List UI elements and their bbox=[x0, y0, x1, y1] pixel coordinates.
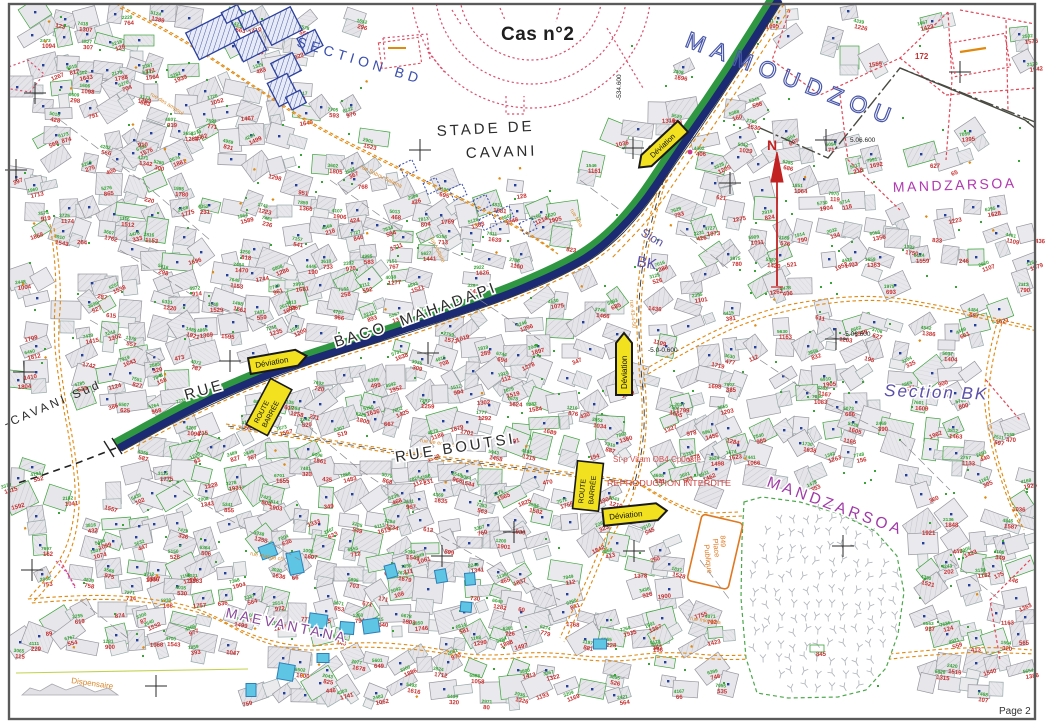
svg-text:406: 406 bbox=[696, 152, 707, 158]
svg-text:-534.600: -534.600 bbox=[616, 74, 623, 100]
svg-text:6409: 6409 bbox=[447, 694, 458, 700]
svg-text:559: 559 bbox=[257, 315, 268, 322]
svg-text:4111: 4111 bbox=[29, 641, 39, 647]
svg-text:7111: 7111 bbox=[404, 499, 415, 505]
svg-text:231: 231 bbox=[200, 210, 211, 216]
svg-text:4727: 4727 bbox=[704, 225, 715, 232]
svg-text:1259: 1259 bbox=[421, 404, 435, 410]
svg-text:565: 565 bbox=[1019, 641, 1030, 647]
svg-text:3624: 3624 bbox=[708, 456, 719, 463]
svg-text:1058: 1058 bbox=[471, 679, 485, 686]
svg-text:693: 693 bbox=[886, 290, 897, 296]
svg-text:7113: 7113 bbox=[1018, 282, 1029, 288]
svg-text:910: 910 bbox=[138, 142, 149, 149]
svg-text:1901: 1901 bbox=[497, 544, 511, 551]
svg-text:5013: 5013 bbox=[389, 209, 400, 216]
svg-text:649: 649 bbox=[374, 664, 385, 670]
svg-text:6478: 6478 bbox=[780, 285, 792, 292]
svg-text:1979: 1979 bbox=[884, 284, 895, 290]
svg-text:7592: 7592 bbox=[205, 118, 217, 125]
svg-text:2469: 2469 bbox=[876, 421, 887, 427]
svg-text:1302: 1302 bbox=[477, 400, 491, 407]
svg-text:733: 733 bbox=[323, 264, 334, 271]
svg-text:6124: 6124 bbox=[914, 253, 925, 259]
svg-text:5909: 5909 bbox=[748, 234, 759, 241]
svg-text:7441: 7441 bbox=[745, 455, 756, 461]
svg-text:1559: 1559 bbox=[916, 259, 930, 265]
svg-text:5021: 5021 bbox=[187, 573, 198, 579]
svg-text:2971: 2971 bbox=[481, 699, 492, 706]
svg-text:66: 66 bbox=[676, 695, 684, 701]
svg-text:Cas n°2: Cas n°2 bbox=[501, 24, 574, 45]
svg-text:530: 530 bbox=[177, 591, 188, 598]
svg-text:4985: 4985 bbox=[362, 254, 373, 260]
svg-text:764: 764 bbox=[124, 21, 135, 27]
svg-text:845: 845 bbox=[816, 652, 827, 658]
svg-text:1906: 1906 bbox=[333, 214, 347, 221]
svg-text:970: 970 bbox=[346, 266, 357, 273]
svg-text:1768: 1768 bbox=[566, 622, 580, 629]
svg-text:506: 506 bbox=[201, 551, 212, 558]
svg-text:446: 446 bbox=[326, 688, 337, 695]
svg-text:7271: 7271 bbox=[124, 590, 135, 596]
svg-text:7158: 7158 bbox=[1004, 432, 1015, 438]
svg-text:619: 619 bbox=[75, 619, 86, 626]
svg-text:5.06.600: 5.06.600 bbox=[850, 137, 876, 144]
svg-text:6381: 6381 bbox=[502, 626, 513, 633]
svg-text:Page 2: Page 2 bbox=[999, 706, 1031, 717]
svg-text:713: 713 bbox=[438, 240, 449, 246]
svg-text:1746: 1746 bbox=[415, 626, 429, 633]
svg-text:667: 667 bbox=[384, 422, 395, 428]
svg-text:5341: 5341 bbox=[222, 502, 233, 508]
svg-text:1098: 1098 bbox=[81, 89, 95, 96]
svg-text:1098: 1098 bbox=[302, 548, 314, 555]
svg-text:Déviation: Déviation bbox=[620, 356, 629, 389]
svg-text:1609: 1609 bbox=[68, 92, 79, 99]
svg-text:7850: 7850 bbox=[812, 394, 823, 400]
svg-text:7059: 7059 bbox=[959, 131, 971, 138]
svg-text:246: 246 bbox=[959, 259, 970, 265]
svg-text:1231: 1231 bbox=[103, 639, 114, 645]
svg-text:1404: 1404 bbox=[944, 357, 958, 363]
svg-text:1512: 1512 bbox=[121, 222, 135, 229]
svg-text:3618: 3618 bbox=[320, 259, 331, 266]
svg-text:914: 914 bbox=[192, 291, 203, 298]
svg-text:1805: 1805 bbox=[329, 169, 343, 176]
svg-text:-5.06.600: -5.06.600 bbox=[843, 331, 871, 338]
svg-text:1467: 1467 bbox=[241, 116, 255, 123]
svg-text:3115: 3115 bbox=[158, 471, 169, 477]
svg-text:7418: 7418 bbox=[77, 21, 88, 28]
svg-text:436: 436 bbox=[1035, 239, 1046, 245]
svg-text:4700: 4700 bbox=[165, 636, 176, 643]
svg-text:5037: 5037 bbox=[942, 351, 953, 357]
svg-text:6502: 6502 bbox=[294, 667, 306, 674]
svg-text:2392: 2392 bbox=[343, 260, 354, 267]
svg-text:1153: 1153 bbox=[145, 238, 159, 245]
svg-text:823: 823 bbox=[932, 238, 943, 245]
svg-text:876: 876 bbox=[568, 411, 579, 418]
svg-text:1851: 1851 bbox=[792, 183, 803, 189]
svg-text:1529: 1529 bbox=[210, 308, 224, 314]
svg-text:972: 972 bbox=[275, 606, 286, 613]
svg-text:2484: 2484 bbox=[233, 262, 244, 268]
svg-text:1863: 1863 bbox=[189, 579, 203, 585]
svg-text:1498: 1498 bbox=[711, 461, 725, 468]
svg-text:3725: 3725 bbox=[59, 213, 70, 219]
svg-text:66: 66 bbox=[292, 575, 300, 582]
svg-text:520: 520 bbox=[302, 422, 313, 429]
svg-text:4831: 4831 bbox=[491, 202, 503, 209]
svg-text:4446: 4446 bbox=[306, 264, 317, 270]
svg-text:1163: 1163 bbox=[1001, 621, 1015, 627]
svg-text:1200: 1200 bbox=[495, 538, 506, 545]
svg-text:3816: 3816 bbox=[85, 522, 96, 529]
svg-text:4271: 4271 bbox=[137, 155, 148, 162]
svg-text:4369: 4369 bbox=[432, 492, 444, 499]
svg-text:726: 726 bbox=[505, 631, 516, 638]
svg-text:1307: 1307 bbox=[79, 27, 93, 34]
svg-text:1804: 1804 bbox=[18, 384, 32, 391]
svg-text:3065: 3065 bbox=[13, 648, 24, 655]
svg-text:2255: 2255 bbox=[72, 613, 84, 620]
svg-text:4546: 4546 bbox=[1002, 518, 1013, 525]
svg-text:1907: 1907 bbox=[147, 577, 161, 583]
svg-text:967: 967 bbox=[406, 505, 417, 511]
svg-text:1921: 1921 bbox=[922, 531, 936, 537]
svg-text:1848: 1848 bbox=[945, 523, 959, 529]
svg-text:5042: 5042 bbox=[737, 142, 748, 149]
svg-text:1470: 1470 bbox=[235, 268, 249, 274]
svg-text:1850: 1850 bbox=[412, 620, 423, 627]
svg-text:385: 385 bbox=[726, 388, 737, 394]
svg-text:1342: 1342 bbox=[139, 161, 153, 168]
svg-text:6507: 6507 bbox=[118, 402, 129, 409]
svg-text:4352: 4352 bbox=[198, 204, 209, 210]
svg-text:7697: 7697 bbox=[41, 546, 52, 552]
svg-text:618: 618 bbox=[241, 255, 252, 262]
svg-text:6563: 6563 bbox=[923, 621, 934, 627]
svg-text:1606: 1606 bbox=[79, 83, 90, 90]
svg-text:1292: 1292 bbox=[478, 416, 492, 422]
svg-text:4260: 4260 bbox=[185, 425, 196, 432]
svg-text:1064: 1064 bbox=[794, 189, 808, 195]
svg-text:767: 767 bbox=[389, 264, 400, 271]
svg-text:1546: 1546 bbox=[586, 163, 597, 169]
svg-text:Section BK: Section BK bbox=[884, 381, 989, 404]
svg-text:5630: 5630 bbox=[777, 329, 788, 335]
svg-text:1210: 1210 bbox=[566, 405, 578, 412]
svg-text:5073: 5073 bbox=[843, 406, 854, 412]
svg-text:4243: 4243 bbox=[941, 563, 952, 570]
svg-text:6910: 6910 bbox=[820, 376, 832, 383]
svg-text:1011: 1011 bbox=[751, 240, 765, 247]
svg-text:1777: 1777 bbox=[476, 410, 487, 416]
svg-text:1133: 1133 bbox=[962, 461, 976, 467]
svg-text:1913: 1913 bbox=[286, 300, 297, 306]
svg-text:115: 115 bbox=[15, 654, 26, 661]
svg-text:4807: 4807 bbox=[165, 117, 176, 123]
svg-text:1587: 1587 bbox=[1004, 524, 1018, 531]
svg-text:5387: 5387 bbox=[765, 257, 776, 264]
svg-text:2182: 2182 bbox=[62, 495, 73, 502]
svg-text:470: 470 bbox=[1006, 438, 1017, 444]
svg-text:6588: 6588 bbox=[469, 673, 480, 680]
svg-text:1595: 1595 bbox=[221, 334, 235, 341]
svg-text:4415: 4415 bbox=[723, 310, 735, 317]
svg-text:CAVANI: CAVANI bbox=[466, 143, 538, 162]
svg-text:1543: 1543 bbox=[167, 642, 181, 649]
svg-text:583: 583 bbox=[364, 260, 375, 266]
svg-text:937: 937 bbox=[925, 627, 936, 633]
svg-text:4107: 4107 bbox=[331, 208, 342, 215]
svg-text:2502: 2502 bbox=[1022, 33, 1034, 40]
svg-text:298: 298 bbox=[70, 98, 81, 105]
svg-text:4038: 4038 bbox=[385, 274, 396, 281]
svg-text:381: 381 bbox=[726, 316, 737, 323]
svg-text:80: 80 bbox=[483, 705, 491, 711]
svg-text:1973: 1973 bbox=[707, 231, 721, 238]
svg-text:1609: 1609 bbox=[915, 406, 929, 413]
svg-text:730: 730 bbox=[470, 596, 481, 603]
svg-text:N: N bbox=[767, 137, 777, 153]
svg-text:3189: 3189 bbox=[778, 235, 790, 242]
svg-text:1277: 1277 bbox=[388, 280, 402, 287]
svg-text:2757: 2757 bbox=[960, 455, 971, 461]
svg-text:7970: 7970 bbox=[828, 191, 839, 198]
svg-text:865: 865 bbox=[104, 191, 115, 198]
svg-text:1267: 1267 bbox=[288, 306, 302, 312]
svg-text:1659: 1659 bbox=[865, 257, 876, 263]
svg-text:REPRODUCTION INTERDITE: REPRODUCTION INTERDITE bbox=[607, 478, 731, 488]
svg-text:2816: 2816 bbox=[143, 232, 154, 239]
svg-text:264: 264 bbox=[77, 240, 88, 247]
svg-text:1441: 1441 bbox=[423, 257, 437, 263]
svg-text:190: 190 bbox=[308, 270, 319, 276]
svg-text:323: 323 bbox=[302, 472, 313, 478]
svg-text:855: 855 bbox=[224, 508, 235, 514]
svg-text:6356: 6356 bbox=[436, 234, 447, 240]
svg-text:1827: 1827 bbox=[81, 39, 92, 46]
svg-text:1985: 1985 bbox=[173, 186, 184, 193]
svg-text:6701: 6701 bbox=[274, 473, 285, 479]
svg-text:790: 790 bbox=[1020, 288, 1031, 294]
svg-text:1088: 1088 bbox=[150, 643, 164, 649]
svg-text:St-p Vitam OB4 Cp0oste: St-p Vitam OB4 Cp0oste bbox=[613, 455, 702, 464]
svg-text:202: 202 bbox=[944, 569, 955, 576]
svg-text:771: 771 bbox=[207, 124, 218, 131]
svg-text:1463: 1463 bbox=[949, 434, 963, 441]
svg-text:320: 320 bbox=[1002, 646, 1013, 653]
svg-text:627: 627 bbox=[930, 164, 941, 170]
svg-text:780: 780 bbox=[732, 262, 743, 268]
svg-text:1116: 1116 bbox=[119, 216, 130, 223]
svg-text:1378: 1378 bbox=[634, 574, 648, 580]
svg-text:320: 320 bbox=[449, 700, 460, 706]
svg-text:5972: 5972 bbox=[189, 285, 200, 292]
svg-text:BK: BK bbox=[635, 253, 658, 273]
svg-text:6364: 6364 bbox=[199, 545, 210, 552]
svg-text:1780: 1780 bbox=[175, 192, 189, 199]
svg-text:7611: 7611 bbox=[486, 231, 497, 238]
svg-text:7859: 7859 bbox=[297, 200, 308, 207]
svg-text:1041: 1041 bbox=[65, 501, 79, 508]
svg-text:1094: 1094 bbox=[42, 44, 56, 50]
svg-text:435: 435 bbox=[322, 477, 333, 484]
svg-text:307: 307 bbox=[83, 45, 94, 52]
svg-text:1655: 1655 bbox=[276, 479, 290, 485]
svg-text:1029: 1029 bbox=[739, 148, 753, 155]
svg-text:535: 535 bbox=[717, 689, 728, 696]
svg-text:1639: 1639 bbox=[488, 237, 502, 244]
svg-text:1420: 1420 bbox=[767, 263, 781, 270]
svg-text:2746: 2746 bbox=[594, 307, 606, 314]
svg-text:3250: 3250 bbox=[239, 249, 251, 256]
svg-text:593: 593 bbox=[329, 113, 340, 120]
svg-text:2229: 2229 bbox=[122, 15, 133, 21]
svg-text:215: 215 bbox=[198, 431, 209, 437]
svg-text:768: 768 bbox=[358, 184, 369, 191]
svg-text:900: 900 bbox=[105, 645, 116, 651]
svg-text:413: 413 bbox=[971, 647, 982, 654]
svg-text:521: 521 bbox=[787, 262, 798, 269]
svg-text:2514: 2514 bbox=[272, 600, 283, 607]
svg-text:3812: 3812 bbox=[947, 428, 958, 435]
svg-text:1624: 1624 bbox=[509, 402, 523, 409]
svg-text:468: 468 bbox=[391, 215, 402, 222]
svg-text:406: 406 bbox=[783, 291, 794, 298]
svg-text:4015: 4015 bbox=[175, 585, 186, 592]
svg-text:229: 229 bbox=[31, 647, 42, 653]
svg-text:5276: 5276 bbox=[101, 185, 113, 192]
svg-text:1594: 1594 bbox=[1000, 640, 1011, 647]
svg-text:7678: 7678 bbox=[507, 396, 518, 403]
svg-text:3975: 3975 bbox=[730, 256, 741, 262]
svg-text:625: 625 bbox=[120, 408, 131, 415]
svg-text:5150: 5150 bbox=[168, 549, 179, 555]
svg-text:1161: 1161 bbox=[588, 169, 602, 175]
svg-text:172: 172 bbox=[915, 52, 929, 61]
svg-text:5627: 5627 bbox=[421, 251, 432, 257]
svg-text:1163: 1163 bbox=[779, 335, 793, 341]
svg-text:1066: 1066 bbox=[747, 461, 761, 467]
svg-text:2922: 2922 bbox=[473, 265, 484, 272]
svg-text:4167: 4167 bbox=[674, 689, 685, 695]
svg-text:7151: 7151 bbox=[386, 258, 397, 265]
svg-text:1363: 1363 bbox=[867, 263, 881, 269]
svg-text:1174: 1174 bbox=[61, 219, 75, 225]
svg-text:2136: 2136 bbox=[943, 517, 954, 523]
svg-text:1769: 1769 bbox=[441, 220, 455, 226]
svg-text:1366: 1366 bbox=[299, 206, 313, 213]
svg-text:1350: 1350 bbox=[352, 613, 363, 620]
svg-text:7705: 7705 bbox=[327, 107, 338, 114]
svg-text:7401: 7401 bbox=[254, 309, 266, 316]
svg-text:3602: 3602 bbox=[327, 163, 338, 170]
svg-text:162: 162 bbox=[43, 552, 54, 558]
svg-text:576: 576 bbox=[780, 241, 791, 248]
svg-text:5601: 5601 bbox=[372, 658, 383, 664]
svg-text:6628: 6628 bbox=[934, 669, 946, 676]
svg-text:526: 526 bbox=[170, 555, 181, 561]
svg-text:432: 432 bbox=[88, 528, 99, 535]
svg-text:7907: 7907 bbox=[724, 382, 735, 388]
svg-text:5094: 5094 bbox=[825, 142, 836, 149]
svg-text:1698: 1698 bbox=[708, 384, 722, 391]
svg-text:7481: 7481 bbox=[300, 466, 311, 472]
svg-text:874: 874 bbox=[115, 613, 126, 620]
svg-text:-5.0-0.600: -5.0-0.600 bbox=[648, 347, 678, 354]
svg-text:615: 615 bbox=[106, 313, 117, 320]
svg-text:4542: 4542 bbox=[920, 325, 932, 332]
svg-text:1626: 1626 bbox=[476, 270, 490, 277]
